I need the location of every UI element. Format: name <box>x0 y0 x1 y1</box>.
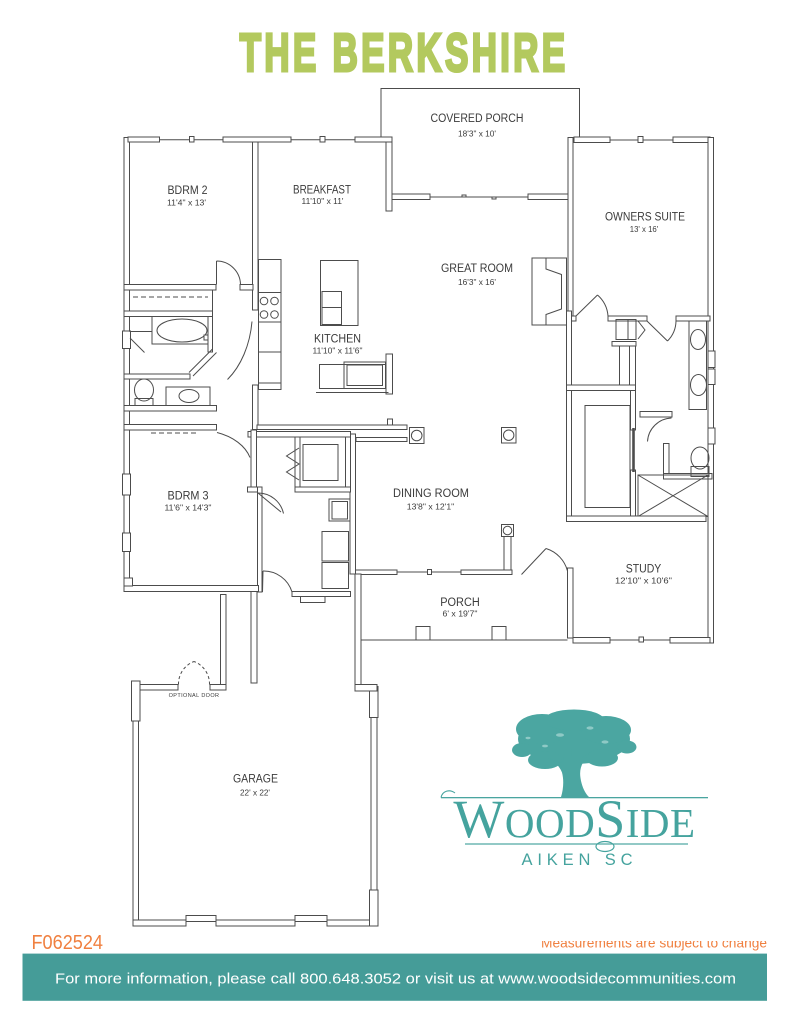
svg-text:PORCH: PORCH <box>440 597 480 609</box>
svg-text:OWNERS SUITE: OWNERS SUITE <box>605 212 685 224</box>
svg-text:F062524: F062524 <box>32 932 104 954</box>
svg-text:AIKEN SC: AIKEN SC <box>522 851 637 869</box>
svg-text:6' x 19'7": 6' x 19'7" <box>443 610 478 619</box>
svg-text:13'8" x 12'1": 13'8" x 12'1" <box>407 503 455 512</box>
svg-text:BDRM 3: BDRM 3 <box>168 491 209 503</box>
svg-text:OPTIONAL DOOR: OPTIONAL DOOR <box>169 693 220 699</box>
svg-text:STUDY: STUDY <box>626 564 662 576</box>
svg-text:13' x 16': 13' x 16' <box>630 225 659 234</box>
svg-text:11'10" x 11'6": 11'10" x 11'6" <box>313 347 363 356</box>
svg-text:KITCHEN: KITCHEN <box>314 334 361 346</box>
svg-text:11'4" x 13': 11'4" x 13' <box>167 199 207 208</box>
svg-text:THE BERKSHIRE: THE BERKSHIRE <box>240 22 569 82</box>
svg-text:BREAKFAST: BREAKFAST <box>293 185 351 197</box>
svg-text:For more information, please c: For more information, please call 800.64… <box>55 971 736 988</box>
svg-text:18'3" x 10': 18'3" x 10' <box>458 130 496 139</box>
svg-text:GARAGE: GARAGE <box>233 774 278 786</box>
svg-text:22' x 22': 22' x 22' <box>240 789 270 798</box>
svg-text:11'6" x 14'3": 11'6" x 14'3" <box>165 504 212 513</box>
svg-text:16'3" x 16': 16'3" x 16' <box>458 278 496 287</box>
svg-text:BDRM 2: BDRM 2 <box>168 185 208 197</box>
svg-text:DINING ROOM: DINING ROOM <box>393 488 469 500</box>
svg-text:COVERED PORCH: COVERED PORCH <box>431 113 524 125</box>
svg-text:GREAT ROOM: GREAT ROOM <box>441 263 513 275</box>
svg-text:12'10" x 10'6": 12'10" x 10'6" <box>615 577 672 586</box>
svg-text:11'10" x 11': 11'10" x 11' <box>302 197 344 206</box>
